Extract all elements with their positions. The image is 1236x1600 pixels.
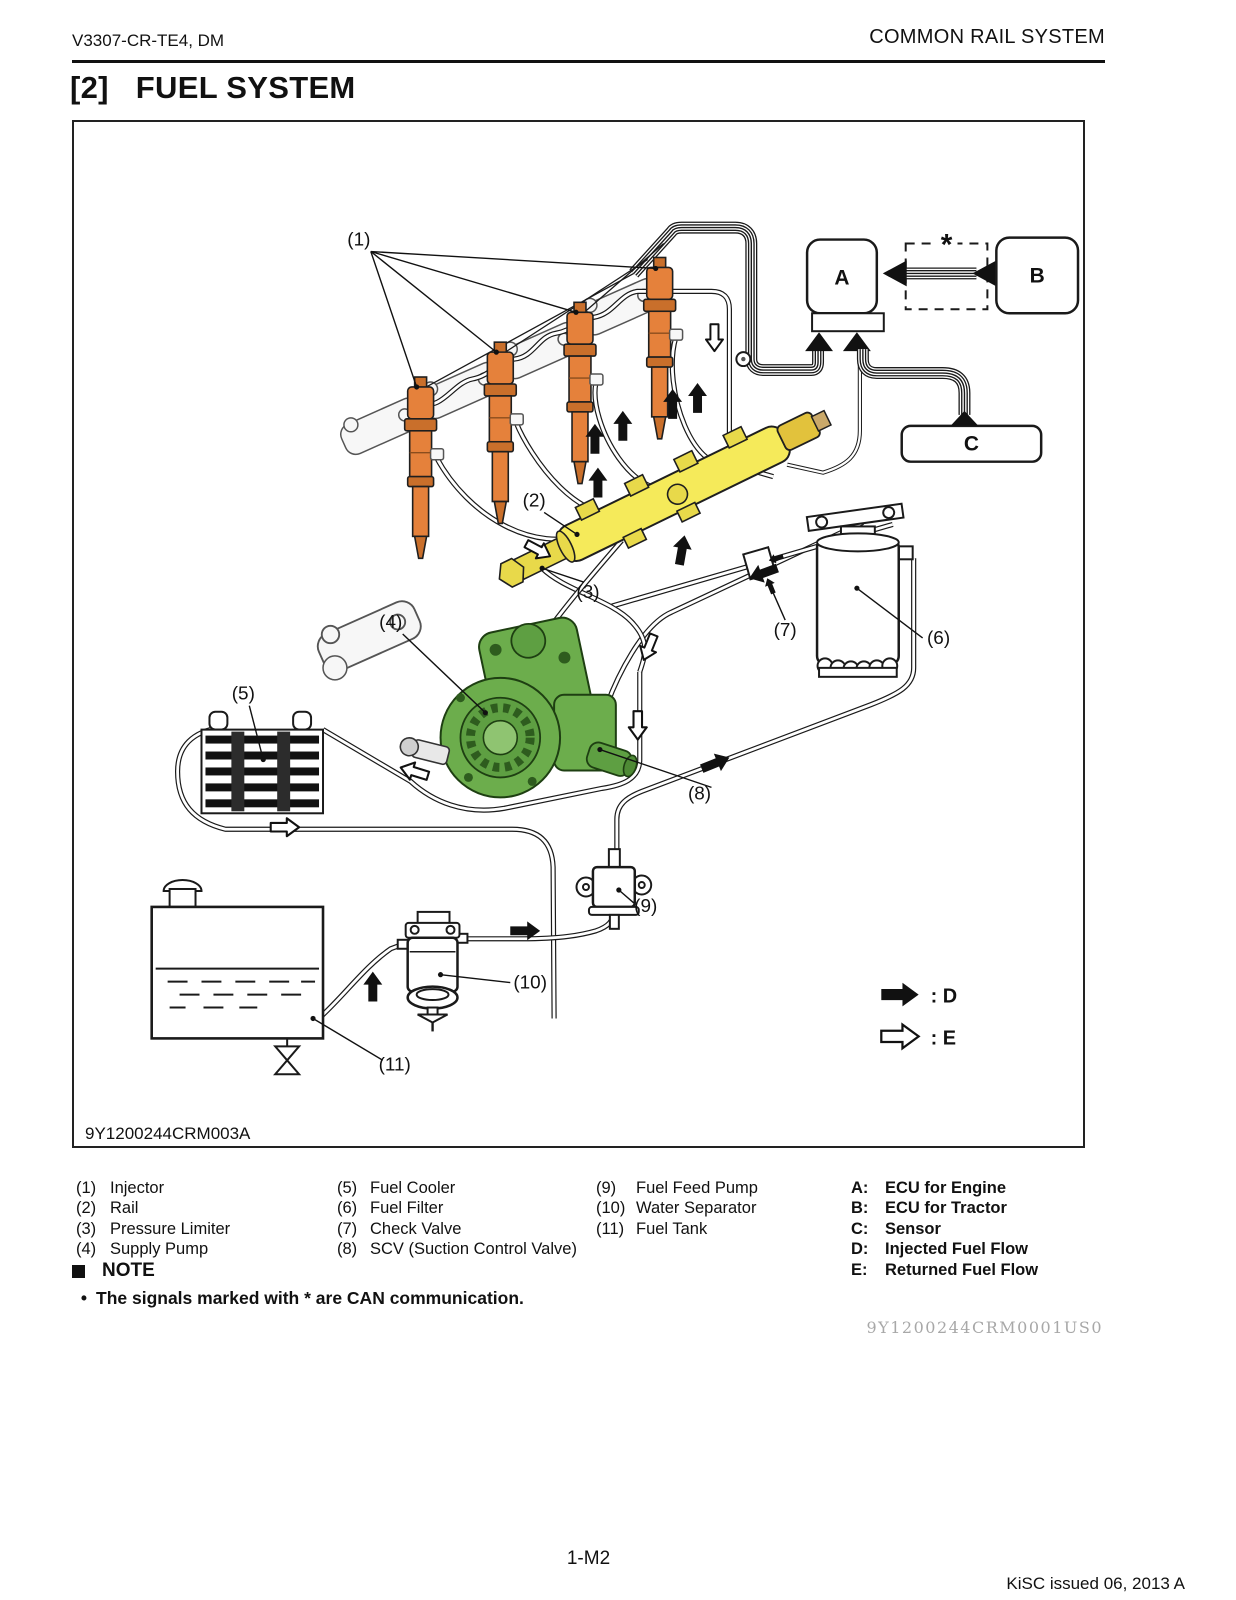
svg-text:(9): (9) [634, 896, 657, 917]
note-heading: NOTE [72, 1260, 524, 1282]
page-title: [2]FUEL SYSTEM [70, 70, 356, 106]
legend-item: (3)Pressure Limiter [76, 1219, 230, 1239]
legend-item: (9)Fuel Feed Pump [596, 1178, 758, 1198]
fuel-system-diagram: A * B [74, 122, 1083, 1146]
ecu-tractor-label: B [1030, 264, 1045, 287]
legend-column-3: (9)Fuel Feed Pump (10)Water Separator (1… [596, 1178, 758, 1239]
legend-column-1: (1)Injector (2)Rail (3)Pressure Limiter … [76, 1178, 230, 1260]
legend-item: B:ECU for Tractor [851, 1198, 1038, 1218]
legend-item: E:Returned Fuel Flow [851, 1260, 1038, 1280]
issue-note: KiSC issued 06, 2013 A [1006, 1574, 1185, 1594]
legend-item: (1)Injector [76, 1178, 230, 1198]
svg-text:(1): (1) [347, 230, 370, 251]
svg-text:(2): (2) [523, 491, 546, 512]
svg-text:(3): (3) [576, 582, 599, 603]
header-section: COMMON RAIL SYSTEM [869, 26, 1105, 49]
title-index: [2] [70, 70, 109, 106]
page-number: 1-M2 [72, 1548, 1105, 1570]
callout-4: (4) [379, 612, 488, 715]
note-block: NOTE • The signals marked with * are CAN… [72, 1260, 524, 1309]
sensor-label: C [964, 433, 979, 456]
title-text: FUEL SYSTEM [136, 70, 356, 106]
legend-item: (11)Fuel Tank [596, 1219, 758, 1239]
legend-item: (5)Fuel Cooler [337, 1178, 577, 1198]
svg-text:(11): (11) [379, 1054, 411, 1075]
legend-item: C:Sensor [851, 1219, 1038, 1239]
svg-text:(6): (6) [927, 628, 950, 649]
header-rule [72, 60, 1105, 63]
ecu-engine-box: A [805, 240, 884, 352]
sensor-box: C [863, 349, 1041, 462]
svg-text:(10): (10) [513, 973, 547, 994]
note-square-icon [72, 1265, 85, 1278]
injected-flow-icon [881, 983, 918, 1007]
returned-flow-icon [881, 1025, 918, 1049]
ecu-tractor-box: B [996, 238, 1078, 314]
returned-flow-label: : E [931, 1027, 956, 1049]
fuel-system-figure: A * B [72, 120, 1085, 1148]
can-asterisk: * [941, 229, 953, 262]
legend-item: (7)Check Valve [337, 1219, 577, 1239]
tank-to-separator-pipe [321, 943, 407, 1017]
fuel-tank [152, 880, 323, 1074]
svg-text:(5): (5) [232, 684, 255, 705]
drain-valve [275, 1038, 299, 1074]
figure-code: 9Y1200244CRM003A [82, 1124, 253, 1144]
callout-11: (11) [310, 1016, 410, 1075]
svg-text:(7): (7) [774, 620, 797, 641]
legend-item: (2)Rail [76, 1198, 230, 1218]
legend-column-2: (5)Fuel Cooler (6)Fuel Filter (7)Check V… [337, 1178, 577, 1260]
manual-page: V3307-CR-TE4, DM COMMON RAIL SYSTEM [2]F… [0, 0, 1236, 1600]
ecu-engine-label: A [834, 266, 849, 289]
document-code: 9Y1200244CRM0001US0 [866, 1318, 1103, 1337]
injected-flow-label: : D [931, 986, 958, 1008]
header-model: V3307-CR-TE4, DM [72, 31, 224, 51]
legend-column-letters: A:ECU for Engine B:ECU for Tractor C:Sen… [851, 1178, 1038, 1280]
callout-7: (7) [762, 576, 796, 641]
legend-item: (4)Supply Pump [76, 1239, 230, 1259]
legend-item: (8)SCV (Suction Control Valve) [337, 1239, 577, 1259]
flow-legend: : D : E [881, 983, 957, 1050]
can-link: * [883, 229, 997, 310]
legend-item: (6)Fuel Filter [337, 1198, 577, 1218]
svg-text:(4): (4) [379, 612, 402, 633]
legend-item: (10)Water Separator [596, 1198, 758, 1218]
supply-pump [398, 614, 639, 797]
bullet-icon: • [72, 1288, 96, 1309]
mount-nut [323, 656, 347, 680]
legend-item: D:Injected Fuel Flow [851, 1239, 1038, 1259]
legend-item: A:ECU for Engine [851, 1178, 1038, 1198]
fuel-cooler [201, 712, 323, 814]
note-bullet-row: • The signals marked with * are CAN comm… [72, 1288, 524, 1309]
water-separator [398, 912, 468, 1032]
